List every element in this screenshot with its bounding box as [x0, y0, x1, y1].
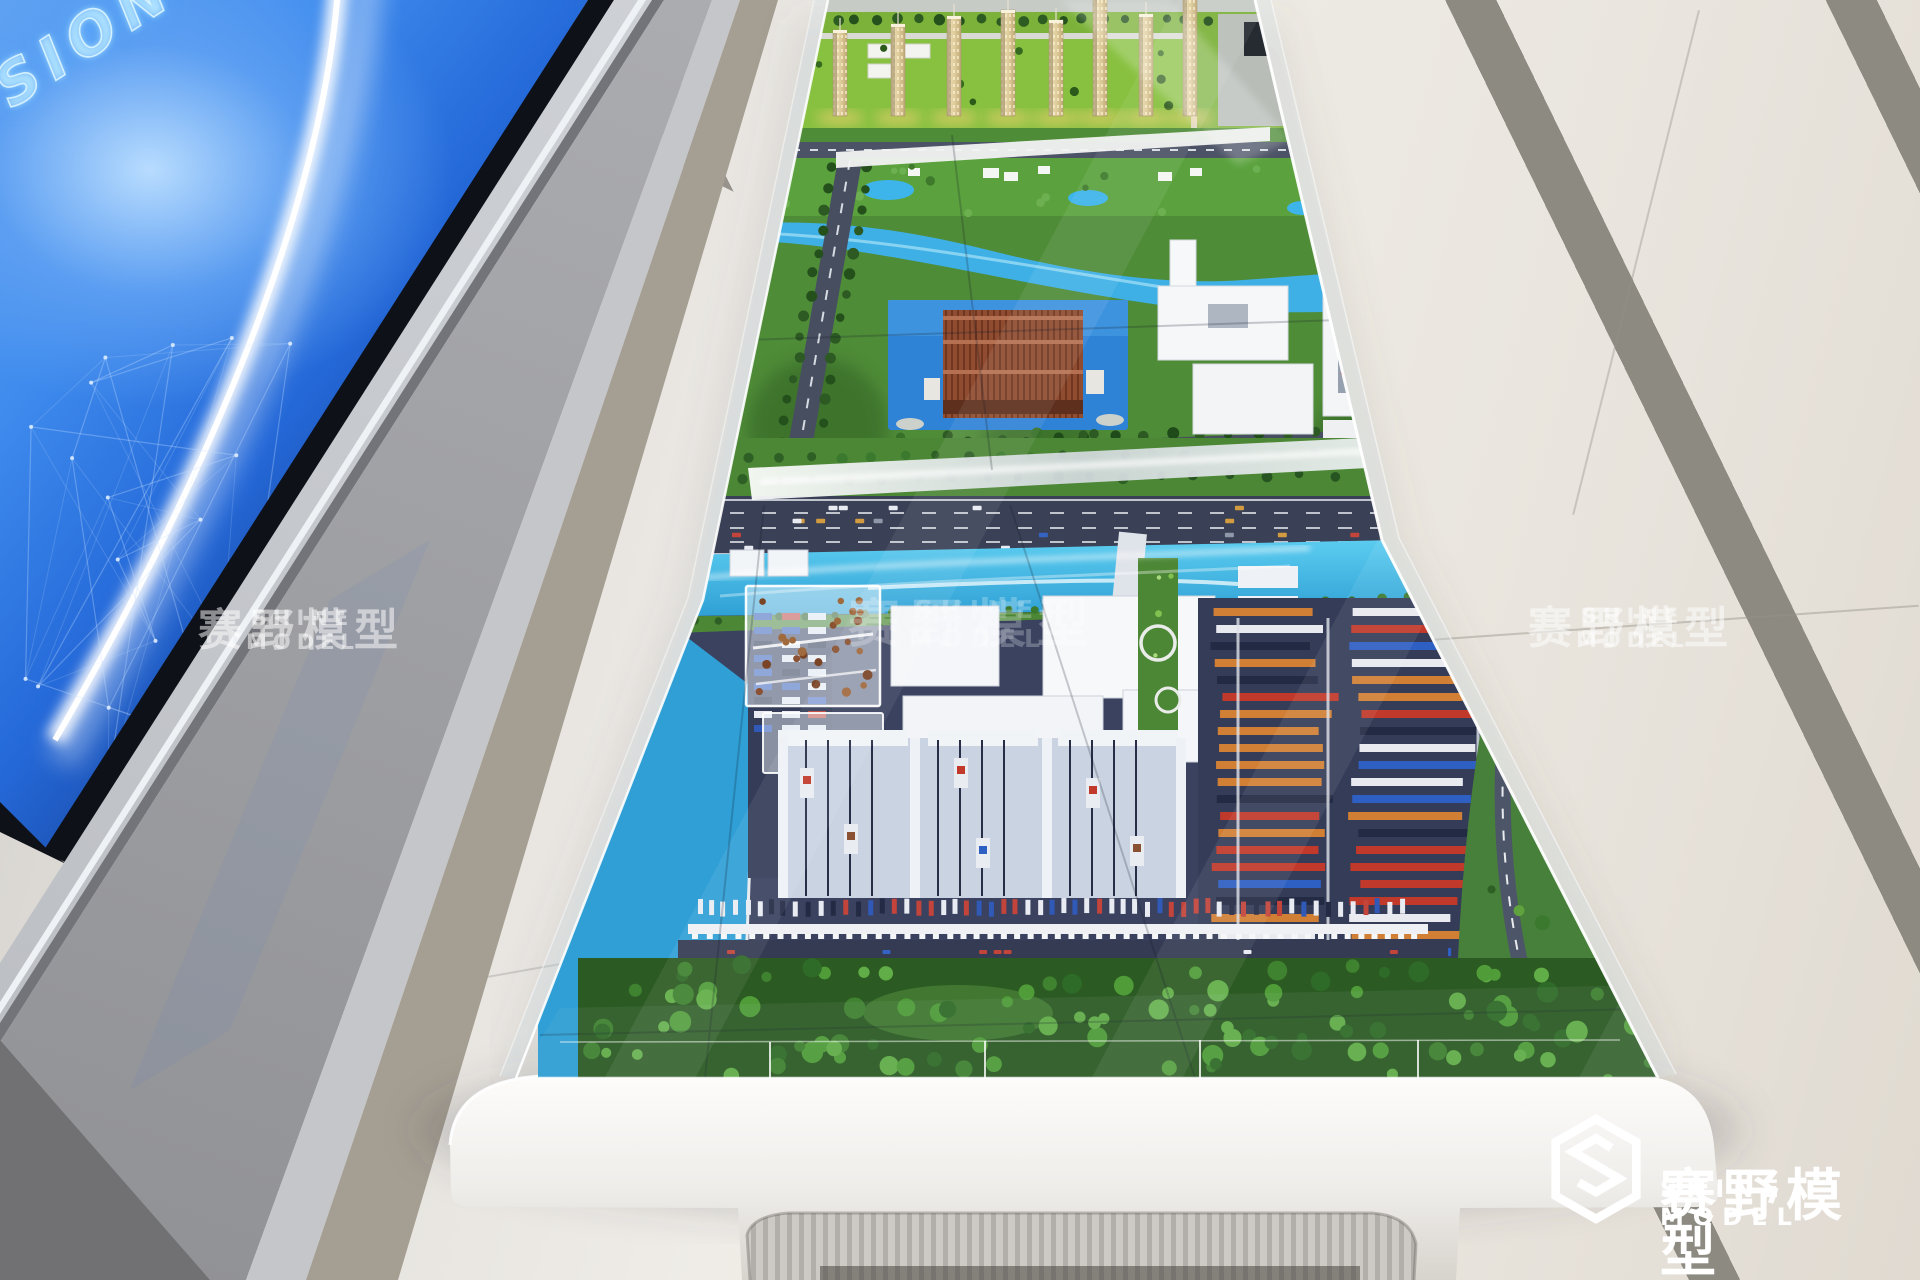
- glass-wall-right: [1255, 0, 1676, 1078]
- glass-outer-edge-right: [1271, 0, 1676, 1074]
- watermark-en-text: SHINE MODEL: [198, 606, 408, 654]
- model-panel-seams: [540, 135, 1680, 1078]
- hexagon-s-logo-icon: [1548, 1114, 1644, 1224]
- brand-logo: 赛野模型 SHINE MODEL: [1548, 1104, 1908, 1234]
- front-glass-tint: [516, 985, 1658, 1078]
- glass-wall-left: [500, 0, 828, 1078]
- brand-logo-en: SHINE MODEL: [1660, 1175, 1908, 1231]
- watermark-en-text: SHINE MODEL: [1528, 604, 1738, 652]
- glass-outer-edge-left: [500, 0, 814, 1076]
- watermark-en-text: SHINE MODEL: [848, 596, 1108, 654]
- glass-edge-right: [1255, 0, 1658, 1078]
- showroom-photo: SION INNO: [0, 0, 1920, 1280]
- glass-reflection-streak: [700, 548, 1310, 578]
